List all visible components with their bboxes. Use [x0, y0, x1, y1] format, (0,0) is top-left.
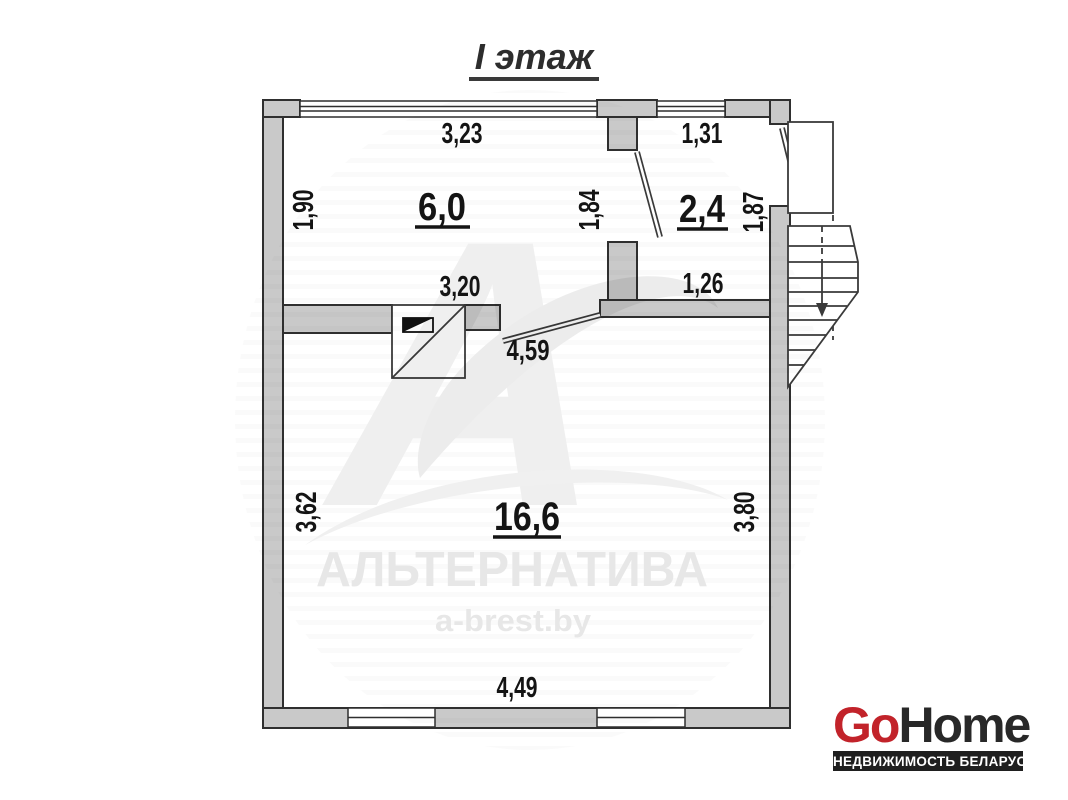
title-wrap: I этаж [0, 38, 1068, 81]
porch-landing [788, 122, 833, 213]
dim-room166-right: 3,80 [729, 492, 761, 533]
room24-area-label: 2,4 [679, 188, 725, 231]
logo-home: Home [898, 697, 1029, 753]
agency-watermark: А АЛЬТЕРНАТИВА a-brest.by [235, 90, 825, 750]
dim-room166-bottom: 4,49 [497, 672, 538, 704]
room6-area-label: 6,0 [418, 186, 466, 229]
dim-room24-top: 1,31 [682, 118, 723, 150]
dim-room6-top: 3,23 [442, 118, 483, 150]
dim-room24-bottom: 1,26 [683, 268, 724, 300]
floorplan-drawing: А АЛЬТЕРНАТИВА a-brest.by 3,23 1,90 1,84… [0, 0, 1068, 800]
dim-room24-right: 1,87 [738, 192, 770, 233]
gohome-logo-text: GoHome [833, 700, 1029, 750]
dim-room6-right: 1,84 [574, 190, 606, 231]
gohome-logo: GoHome НЕДВИЖИМОСТЬ БЕЛАРУСИ [833, 700, 1029, 771]
watermark-site: a-brest.by [435, 603, 592, 638]
watermark-brand: АЛЬТЕРНАТИВА [316, 543, 708, 597]
room166-area-label: 16,6 [494, 495, 560, 539]
floor-title: I этаж [469, 38, 599, 81]
wall-right-upper [770, 100, 790, 124]
dim-room6-bottom: 3,20 [440, 271, 481, 303]
window-top-room24 [657, 101, 725, 117]
logo-go: Go [833, 697, 898, 753]
floorplan-page: А АЛЬТЕРНАТИВА a-brest.by 3,23 1,90 1,84… [0, 0, 1068, 800]
dim-room166-opening: 4,59 [507, 335, 550, 367]
logo-tagline: НЕДВИЖИМОСТЬ БЕЛАРУСИ [833, 751, 1023, 771]
dim-room166-left: 3,62 [291, 492, 323, 533]
wall-top-seg1 [263, 100, 300, 117]
dim-room6-left: 1,90 [288, 190, 320, 231]
